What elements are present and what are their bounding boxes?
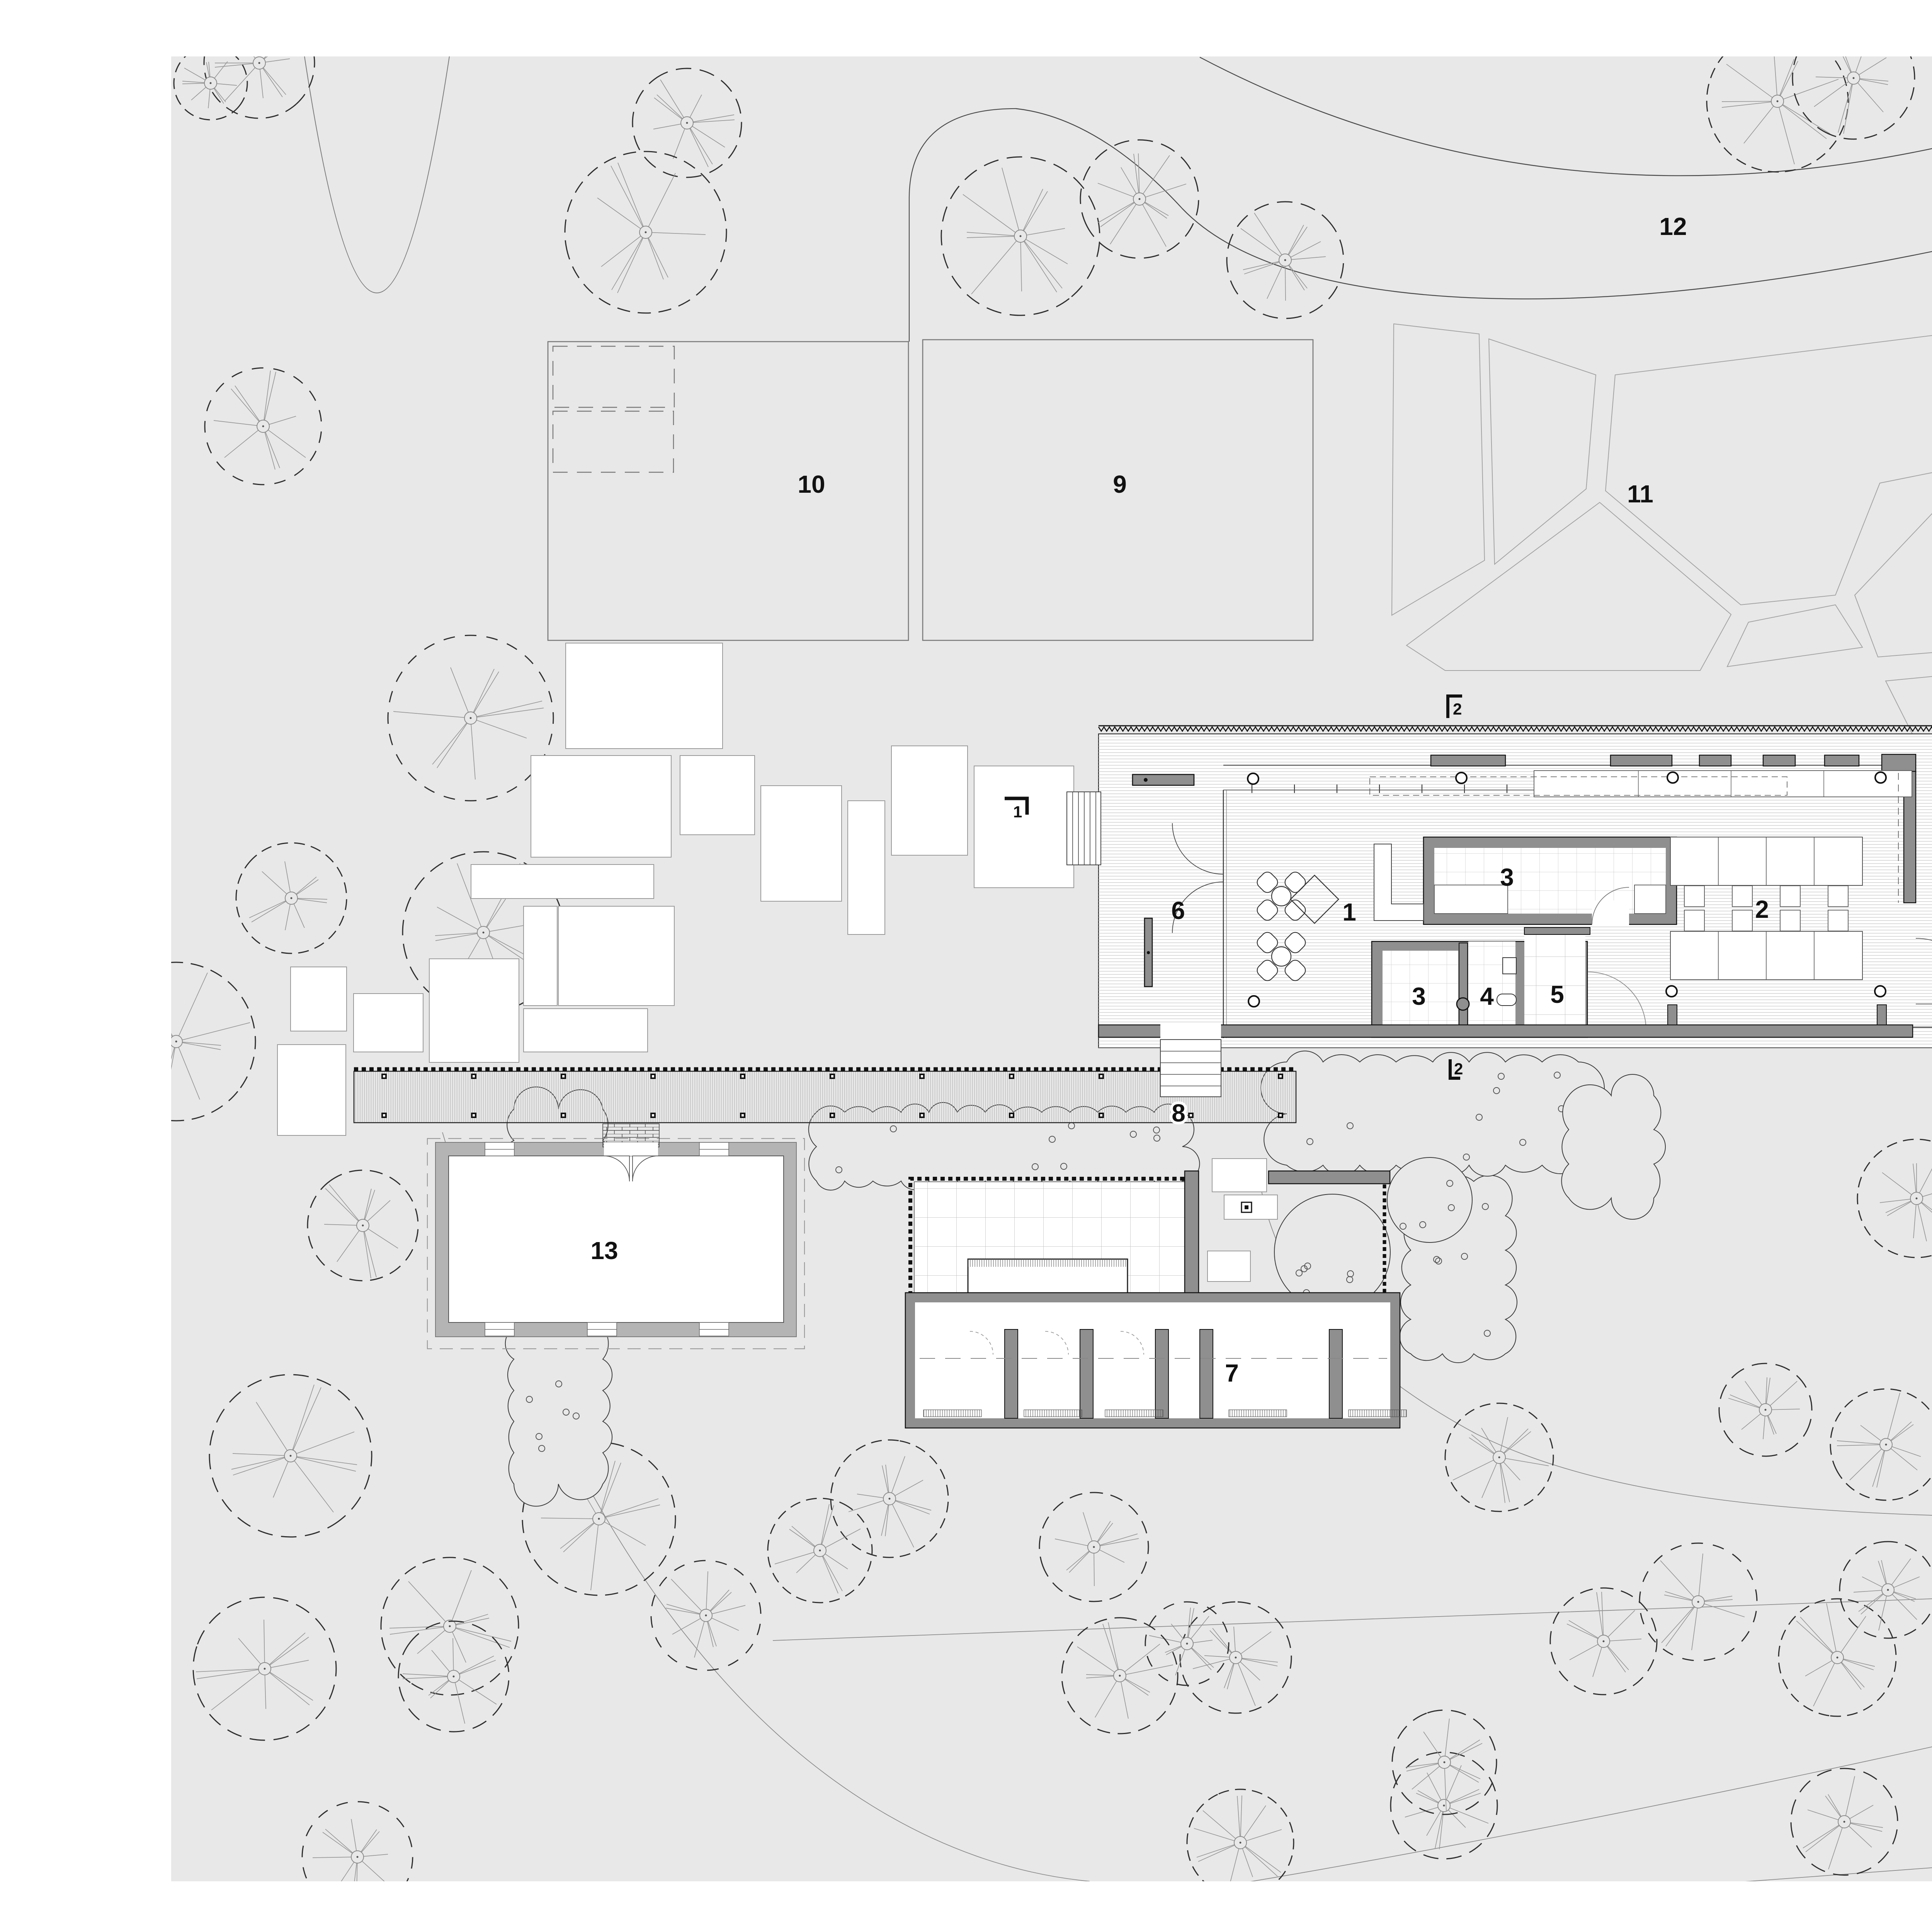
svg-text:10: 10 bbox=[798, 470, 825, 498]
svg-text:2: 2 bbox=[1453, 700, 1462, 718]
svg-text:1: 1 bbox=[1342, 898, 1356, 926]
svg-text:3: 3 bbox=[1412, 982, 1426, 1010]
svg-text:4: 4 bbox=[1480, 982, 1494, 1010]
svg-text:11: 11 bbox=[1627, 480, 1653, 508]
svg-text:6: 6 bbox=[1171, 897, 1185, 924]
svg-text:1: 1 bbox=[1013, 803, 1022, 821]
svg-text:13: 13 bbox=[590, 1237, 618, 1264]
svg-text:2: 2 bbox=[1454, 1060, 1463, 1078]
svg-text:8: 8 bbox=[1172, 1099, 1185, 1127]
svg-text:12: 12 bbox=[1659, 213, 1687, 240]
svg-text:7: 7 bbox=[1225, 1359, 1239, 1387]
svg-text:2: 2 bbox=[1755, 895, 1769, 923]
svg-text:9: 9 bbox=[1113, 470, 1127, 498]
svg-text:5: 5 bbox=[1550, 980, 1564, 1008]
svg-text:3: 3 bbox=[1500, 863, 1514, 891]
